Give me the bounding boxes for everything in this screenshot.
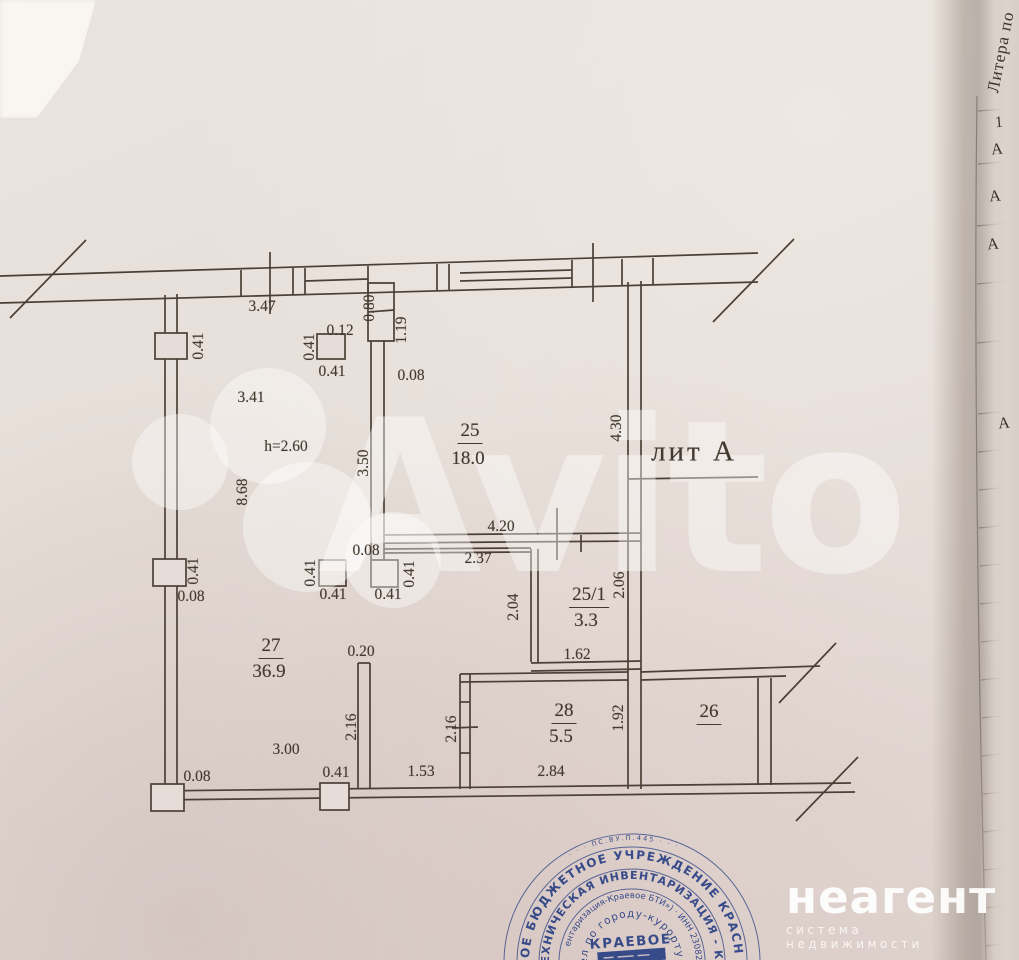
- plan-label: 0.80: [361, 294, 379, 321]
- edge-table-cell: А: [990, 141, 1003, 160]
- plan-label: 2.04: [505, 593, 523, 620]
- plan-label: 25/1: [569, 584, 609, 608]
- scanned-floorplan-page: Avito 3.470.413.41h=2.608.680.410.410.12…: [0, 0, 1019, 960]
- plan-label: 0.41: [322, 764, 349, 782]
- edge-table-cell: А: [986, 236, 999, 255]
- plan-label: 4.30: [608, 414, 626, 441]
- plan-label: 0.41: [374, 586, 401, 604]
- plan-label: 2.16: [343, 713, 361, 740]
- plan-label: 3.3: [574, 610, 598, 632]
- plan-label: 5.5: [549, 726, 573, 748]
- plan-label: 0.41: [190, 332, 208, 359]
- plan-label: 0.12: [326, 322, 353, 340]
- plan-label: 1.53: [407, 763, 434, 781]
- plan-label: 1.92: [610, 704, 628, 731]
- plan-label: 0.08: [177, 588, 204, 606]
- plan-label: 3.41: [237, 389, 264, 407]
- edge-table-cell: 1: [994, 114, 1004, 133]
- page-edge-fold: [931, 0, 1019, 960]
- bti-stamp: · · · ПС.ВУ.П.445 · · · ННОЕ БЮДЖЕТНОЕ У…: [482, 816, 782, 960]
- plan-label: 0.08: [397, 367, 424, 385]
- edge-table-cell: А: [988, 188, 1001, 207]
- plan-label: 2.06: [611, 571, 629, 598]
- brand-logo-text: неагент: [786, 874, 1006, 921]
- walls: [0, 239, 858, 821]
- plan-label: 2.16: [443, 715, 461, 742]
- plan-label: лит А: [651, 436, 737, 469]
- plan-label: 2.84: [537, 763, 564, 781]
- plan-label: 0.41: [302, 559, 320, 586]
- plan-label: 3.00: [272, 741, 299, 759]
- plan-label: 0.41: [319, 586, 346, 604]
- plan-label: 3.50: [355, 449, 373, 476]
- brand-tagline: система недвижимости: [786, 923, 1006, 951]
- plan-label: 0.41: [185, 557, 203, 584]
- plan-label: 36.9: [252, 661, 285, 683]
- plan-label: 25: [458, 420, 483, 444]
- plan-label: 0.08: [352, 542, 379, 560]
- plan-label: 3.47: [248, 298, 275, 316]
- plan-label: 0.41: [318, 363, 345, 381]
- brand-block: неагент система недвижимости: [786, 874, 1006, 951]
- plan-label: 26: [697, 701, 722, 725]
- edge-table-cell: А: [997, 415, 1010, 434]
- plan-label: 0.41: [401, 560, 419, 587]
- plan-label: 8.68: [234, 478, 252, 505]
- plan-label: h=2.60: [264, 438, 308, 456]
- plan-label: 2.37: [464, 550, 491, 568]
- plan-label: 0.08: [183, 768, 210, 786]
- plan-label: 18.0: [451, 448, 484, 470]
- plan-label: 0.20: [347, 643, 374, 661]
- plan-label: 28: [552, 700, 577, 724]
- plan-label: 0.41: [301, 333, 319, 360]
- plan-label: 1.62: [563, 646, 590, 664]
- plan-label: 1.19: [393, 316, 411, 343]
- plan-label: 4.20: [487, 518, 514, 536]
- plan-label: 27: [259, 635, 284, 659]
